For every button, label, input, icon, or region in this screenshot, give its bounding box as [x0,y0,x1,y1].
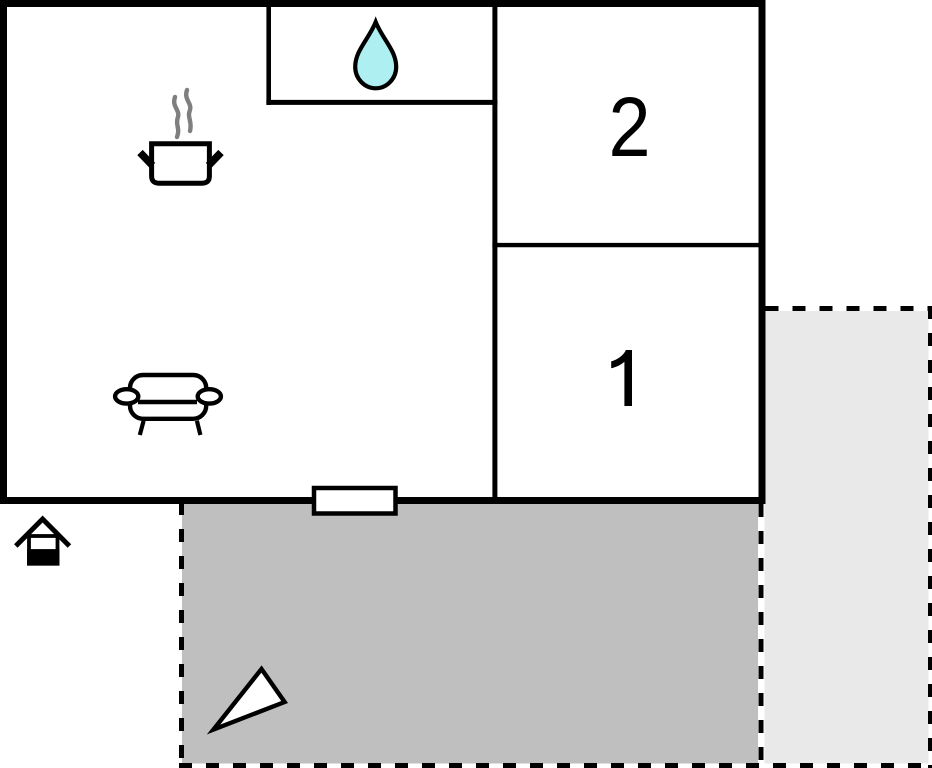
svg-text:2: 2 [608,80,650,174]
